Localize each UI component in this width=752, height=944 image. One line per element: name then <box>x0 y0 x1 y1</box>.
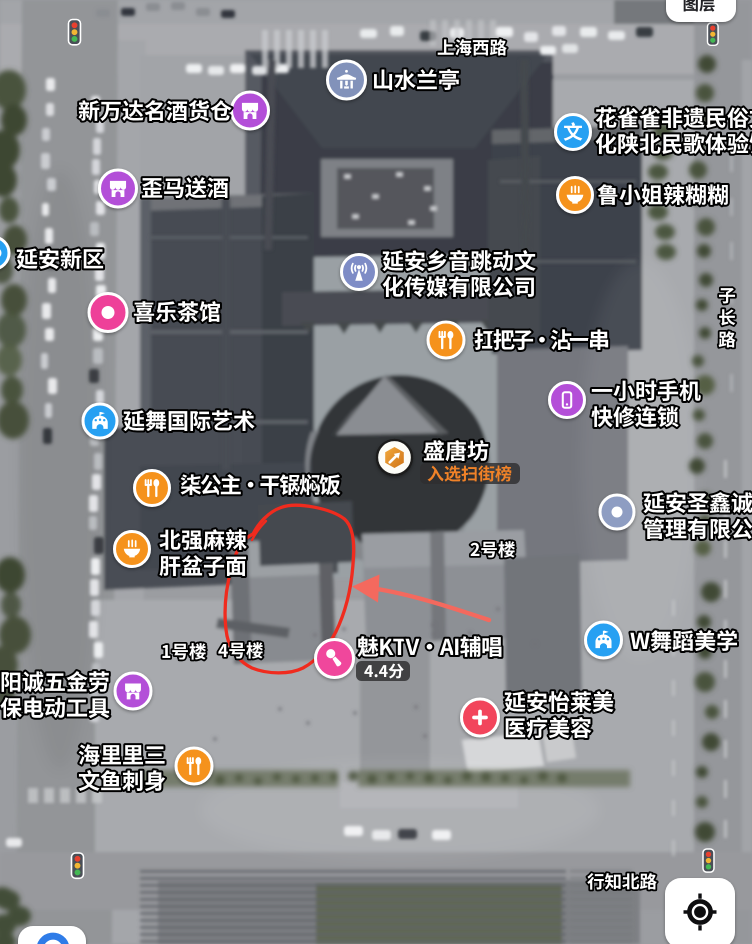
svg-text:鲁小姐辣糊糊: 鲁小姐辣糊糊 <box>597 178 729 210</box>
svg-text:歪马送酒: 歪马送酒 <box>141 171 229 203</box>
svg-text:新万达名酒货仓: 新万达名酒货仓 <box>78 94 232 126</box>
svg-text:柒公主·干锅焖饭: 柒公主·干锅焖饭 <box>180 468 341 500</box>
svg-text:入选扫街榜: 入选扫街榜 <box>427 460 512 485</box>
svg-text:化传媒有限公司: 化传媒有限公司 <box>382 270 536 302</box>
svg-text:山水兰亭: 山水兰亭 <box>372 63 460 95</box>
svg-text:行知北路: 行知北路 <box>587 869 657 894</box>
svg-text:快修连锁: 快修连锁 <box>591 400 679 432</box>
svg-text:1号楼: 1号楼 <box>161 639 207 664</box>
svg-text:保电动工具: 保电动工具 <box>0 691 110 723</box>
svg-text:化陕北民歌体验馆: 化陕北民歌体验馆 <box>595 127 752 159</box>
svg-text:W舞蹈美学: W舞蹈美学 <box>630 624 738 656</box>
svg-text:延安新区: 延安新区 <box>16 242 104 274</box>
svg-text:4号楼: 4号楼 <box>218 638 264 663</box>
svg-text:延舞国际艺术: 延舞国际艺术 <box>123 404 255 436</box>
svg-text:2号楼: 2号楼 <box>470 537 516 562</box>
svg-text:图层: 图层 <box>683 0 716 15</box>
svg-text:医疗美容: 医疗美容 <box>504 711 592 743</box>
svg-text:管理有限公: 管理有限公 <box>643 512 752 544</box>
svg-text:上海西路: 上海西路 <box>437 35 507 60</box>
svg-text:肝盆子面: 肝盆子面 <box>159 549 247 581</box>
svg-text:喜乐茶馆: 喜乐茶馆 <box>133 295 221 327</box>
svg-text:文: 文 <box>563 116 583 145</box>
svg-text:扛把子·沾一串: 扛把子·沾一串 <box>474 323 610 355</box>
svg-text:文鱼刺身: 文鱼刺身 <box>78 764 166 796</box>
svg-text:路: 路 <box>718 327 736 352</box>
svg-text:4.4分: 4.4分 <box>364 658 404 682</box>
